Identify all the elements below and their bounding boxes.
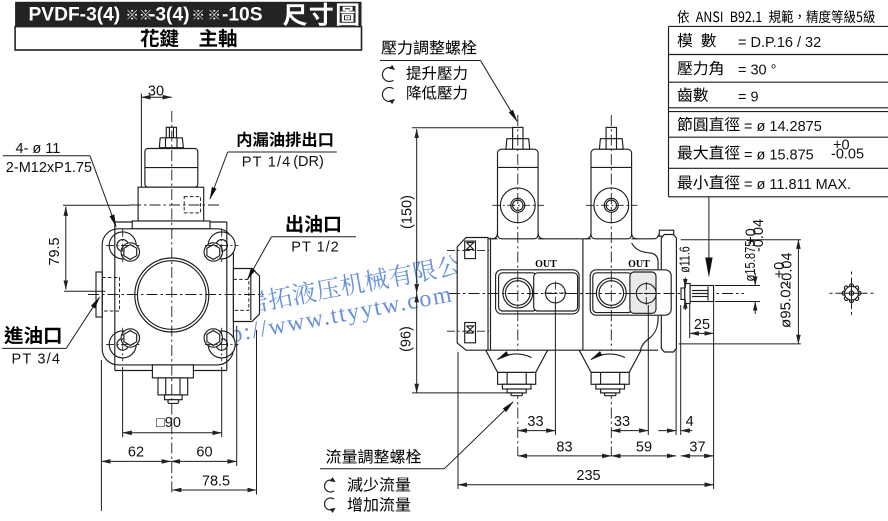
- svg-text:-0.05: -0.05: [831, 147, 864, 163]
- svg-text:PT 3/4: PT 3/4: [12, 352, 62, 368]
- svg-text:78.5: 78.5: [202, 474, 230, 490]
- svg-text:ø11.6: ø11.6: [678, 246, 694, 273]
- svg-text:= D.P.16 / 32: = D.P.16 / 32: [738, 35, 821, 51]
- svg-text:235: 235: [576, 468, 600, 484]
- svg-text:59: 59: [636, 439, 652, 455]
- svg-text:OUT: OUT: [628, 259, 650, 270]
- svg-text:= ø 15.875: = ø 15.875: [744, 148, 814, 164]
- svg-text:ø95.02: ø95.02: [779, 281, 795, 328]
- svg-text:25: 25: [694, 317, 710, 333]
- svg-text:62: 62: [128, 445, 144, 461]
- svg-text:60: 60: [196, 445, 212, 461]
- svg-text:33: 33: [614, 414, 630, 430]
- svg-text:2-M12xP1.75: 2-M12xP1.75: [6, 160, 92, 176]
- svg-text:(150): (150): [400, 195, 416, 229]
- svg-text:-3(4): -3(4): [149, 5, 190, 26]
- svg-text:30: 30: [148, 84, 164, 100]
- svg-text:(96): (96): [399, 326, 415, 352]
- svg-text:-10S: -10S: [222, 5, 263, 26]
- svg-text:(DR): (DR): [293, 154, 324, 170]
- svg-text:83: 83: [556, 439, 572, 455]
- svg-text:PT 1/4: PT 1/4: [242, 155, 292, 171]
- svg-text:= ø 11.811 MAX.: = ø 11.811 MAX.: [744, 177, 851, 193]
- svg-text:= 9: = 9: [738, 90, 759, 106]
- svg-text:4: 4: [686, 414, 694, 430]
- svg-text:33: 33: [527, 414, 543, 430]
- svg-text:37: 37: [689, 439, 705, 455]
- svg-text:□90: □90: [156, 415, 181, 431]
- svg-text:= ø 14.2875: = ø 14.2875: [744, 119, 822, 135]
- svg-text:= 30 °: = 30 °: [738, 63, 776, 79]
- svg-text:OUT: OUT: [535, 259, 557, 270]
- svg-text:79.5: 79.5: [47, 237, 63, 265]
- svg-text:PT 1/2: PT 1/2: [291, 240, 339, 256]
- svg-text:-0.04: -0.04: [780, 252, 796, 285]
- svg-text:4- ø 11: 4- ø 11: [16, 141, 61, 157]
- svg-text:PVDF-3(4): PVDF-3(4): [29, 5, 121, 26]
- svg-text:-0.04: -0.04: [751, 219, 767, 252]
